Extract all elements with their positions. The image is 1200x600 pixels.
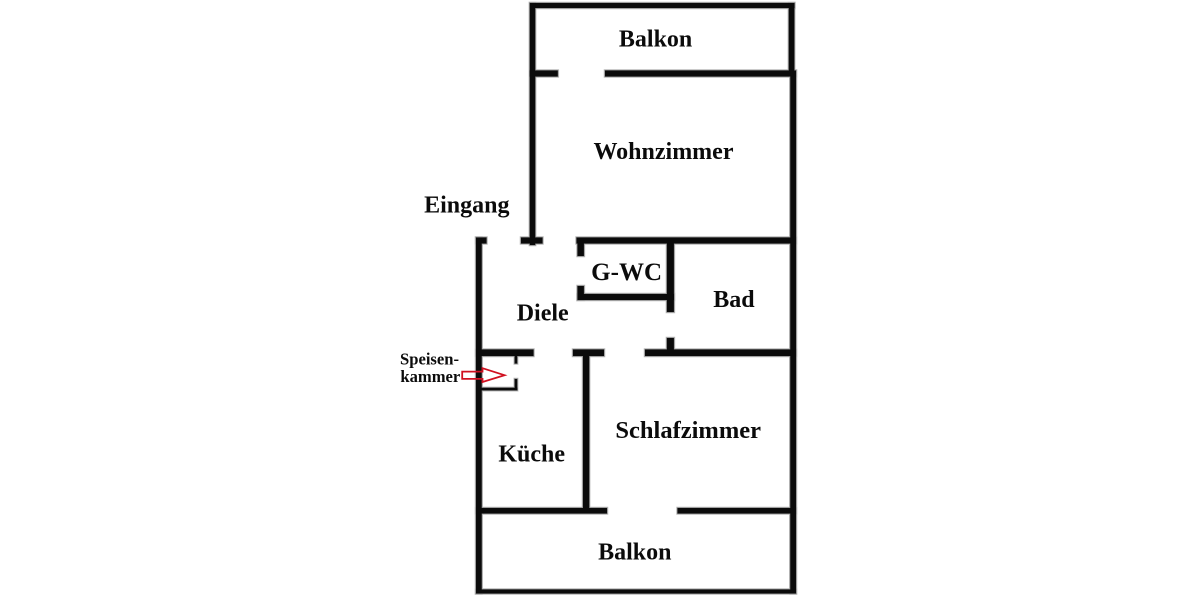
svg-text:Diele: Diele [517,301,569,327]
svg-text:Küche: Küche [498,441,565,467]
svg-text:Bad: Bad [713,287,755,313]
svg-text:Schlafzimmer: Schlafzimmer [615,417,761,444]
svg-text:G-WC: G-WC [591,259,662,286]
svg-text:Wohnzimmer: Wohnzimmer [594,139,734,165]
svg-text:Eingang: Eingang [424,193,509,219]
svg-text:Balkon: Balkon [598,539,671,565]
svg-text:Speisen-: Speisen- [400,350,459,369]
svg-text:Balkon: Balkon [619,27,692,53]
svg-text:kammer: kammer [400,367,461,386]
